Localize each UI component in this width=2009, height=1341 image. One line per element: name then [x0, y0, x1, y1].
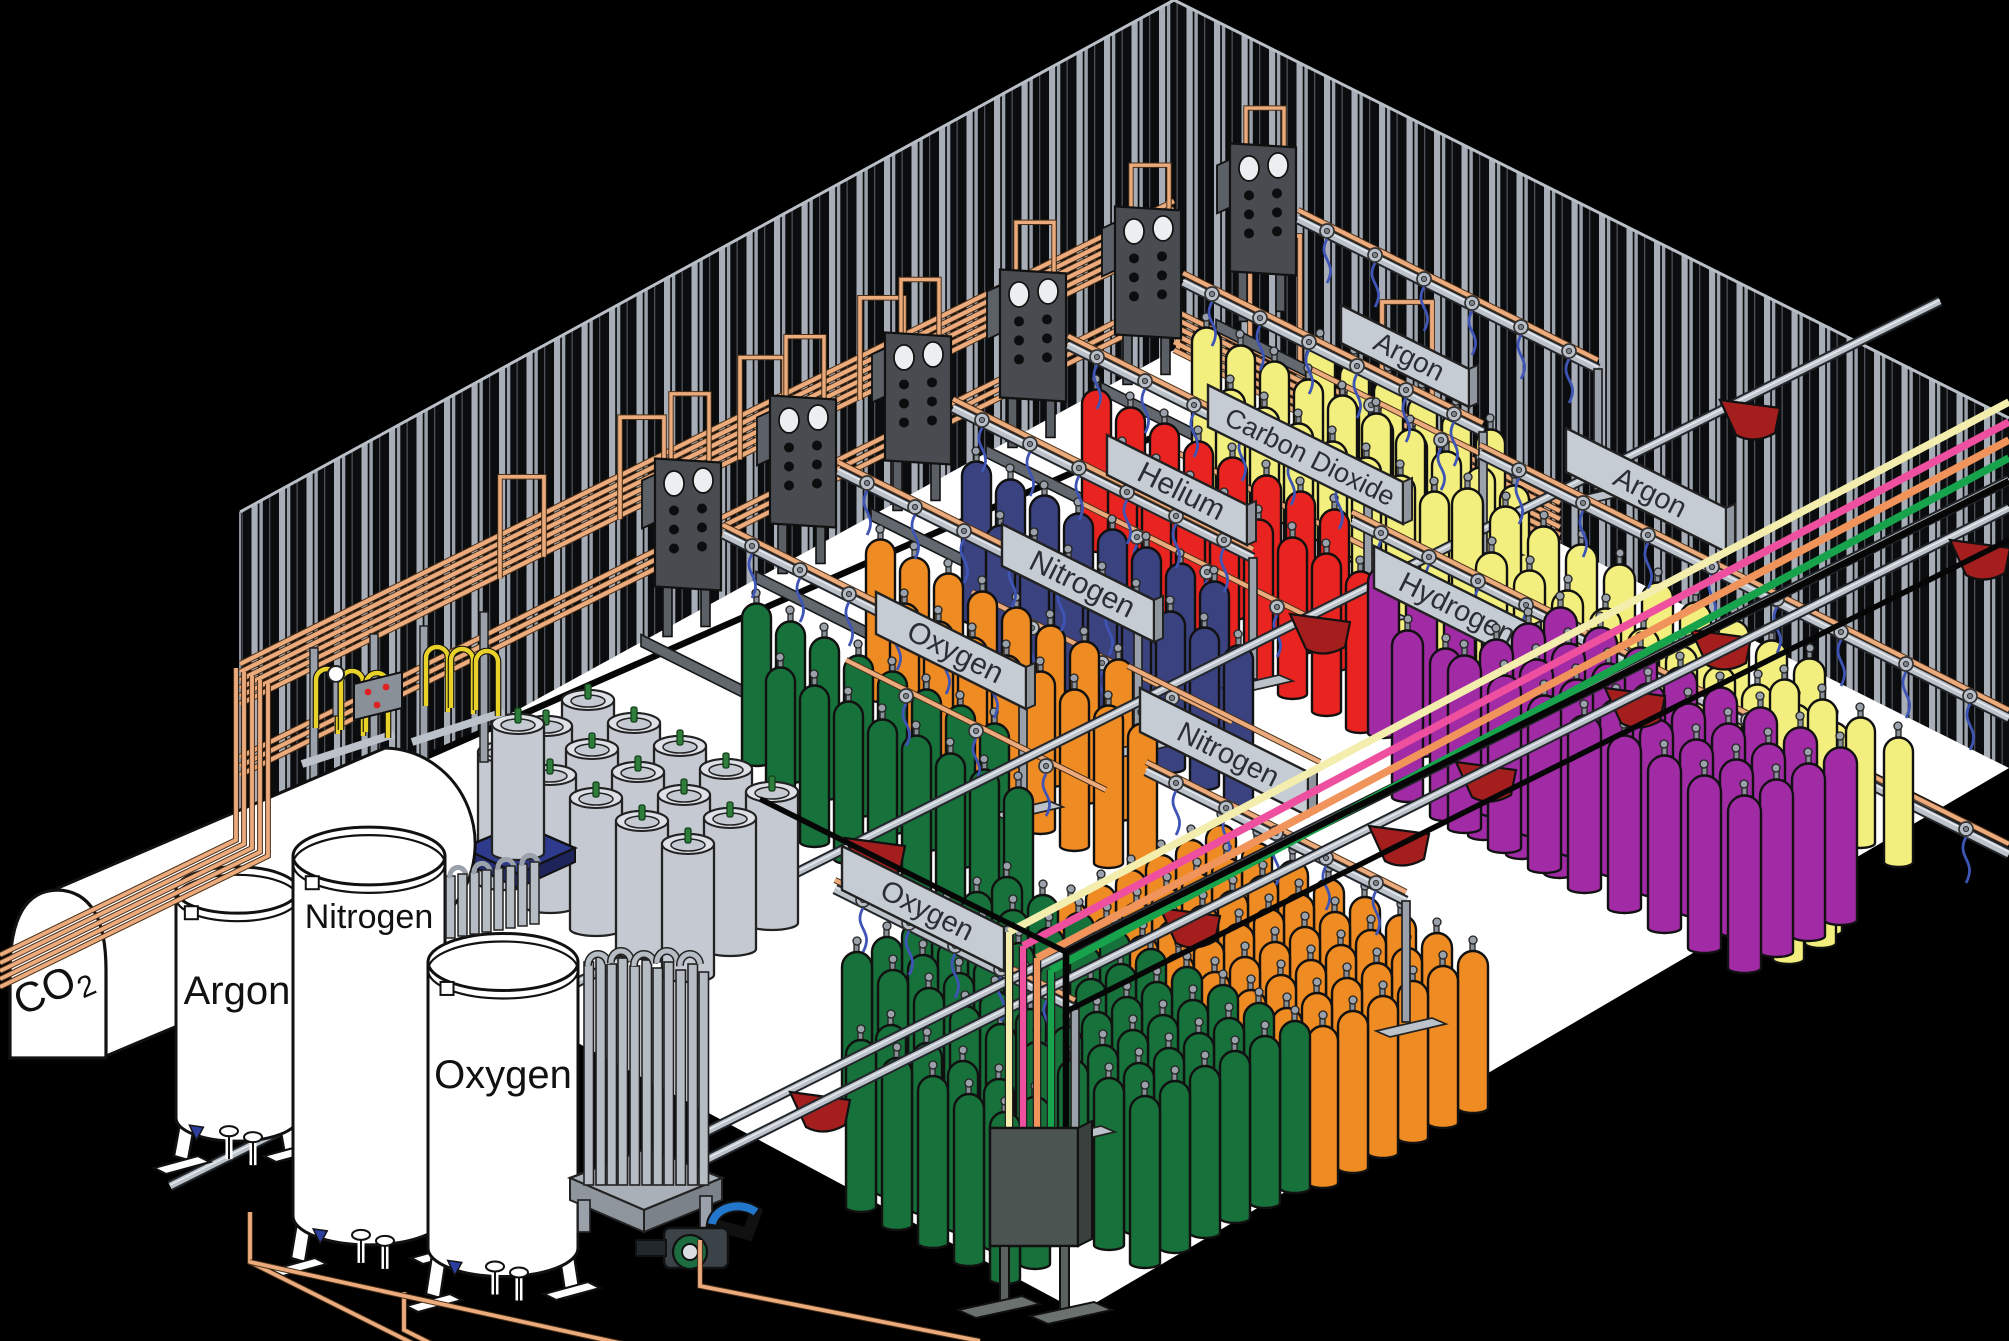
svg-text:Nitrogen: Nitrogen	[305, 898, 434, 936]
svg-text:Oxygen: Oxygen	[434, 1053, 572, 1097]
svg-text:Argon: Argon	[184, 969, 291, 1013]
